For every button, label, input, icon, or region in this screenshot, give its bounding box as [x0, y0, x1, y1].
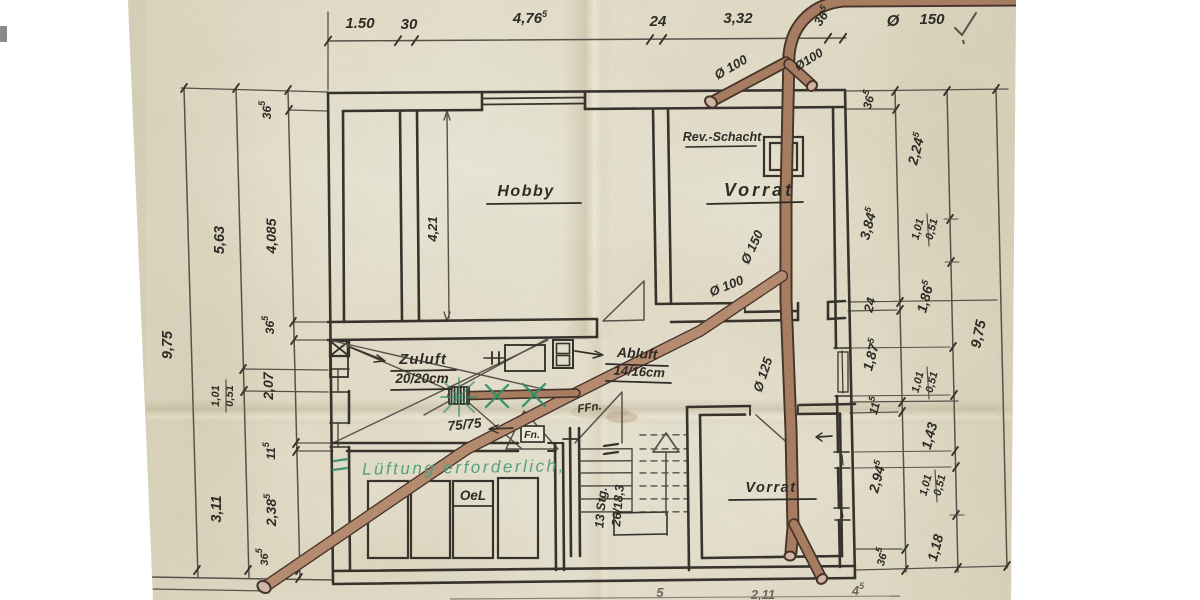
- svg-text:Vorrat: Vorrat: [724, 180, 794, 200]
- svg-text:2,07: 2,07: [260, 371, 276, 400]
- svg-text:20/20cm: 20/20cm: [394, 371, 448, 386]
- svg-text:Abluft: Abluft: [616, 344, 660, 362]
- svg-text:3,32: 3,32: [723, 10, 753, 27]
- svg-text:9,75: 9,75: [160, 330, 176, 359]
- svg-text:Zuluft: Zuluft: [398, 351, 447, 368]
- svg-text:Ø: Ø: [887, 13, 900, 30]
- svg-text:OeL: OeL: [460, 488, 486, 503]
- svg-text:5,63: 5,63: [212, 226, 228, 254]
- svg-text:1.50: 1.50: [345, 15, 375, 32]
- svg-text:Hobby: Hobby: [497, 183, 554, 200]
- svg-text:Lüftung erforderlich,: Lüftung erforderlich,: [362, 456, 566, 479]
- svg-text:14/16cm: 14/16cm: [613, 363, 665, 381]
- svg-text:2,11: 2,11: [750, 587, 775, 600]
- svg-text:4,085: 4,085: [263, 218, 279, 254]
- svg-text:1,01: 1,01: [210, 385, 222, 406]
- svg-text:Rev.-Schacht: Rev.-Schacht: [683, 130, 762, 144]
- svg-text:Fn.: Fn.: [524, 429, 540, 441]
- svg-text:150: 150: [919, 11, 945, 28]
- svg-text:4,21: 4,21: [425, 216, 440, 242]
- svg-text:24: 24: [649, 13, 667, 30]
- svg-text:3,11: 3,11: [209, 495, 225, 522]
- svg-text:Vorrat: Vorrat: [745, 480, 796, 496]
- svg-text:30: 30: [401, 16, 418, 33]
